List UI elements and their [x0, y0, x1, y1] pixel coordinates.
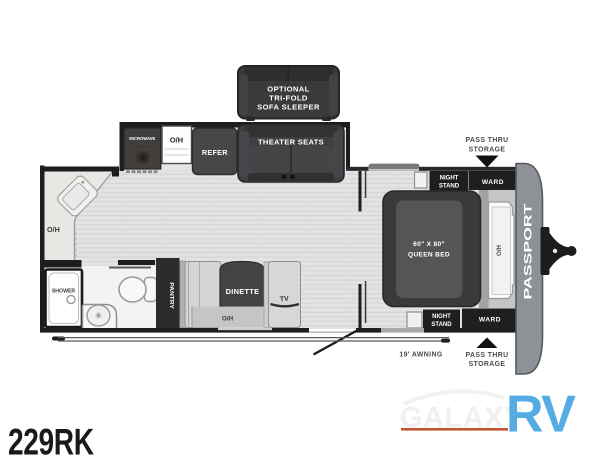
svg-text:O/H: O/H — [170, 136, 183, 145]
svg-text:THEATER SEATS: THEATER SEATS — [258, 138, 324, 147]
svg-text:NIGHT: NIGHT — [440, 176, 459, 182]
svg-text:QUEEN BED: QUEEN BED — [408, 252, 450, 259]
svg-text:SOFA SLEEPER: SOFA SLEEPER — [257, 103, 320, 112]
svg-text:PASS THRU: PASS THRU — [466, 137, 509, 144]
svg-text:TRI-FOLD: TRI-FOLD — [269, 94, 308, 103]
svg-text:PASS THRU: PASS THRU — [466, 352, 509, 359]
svg-text:O/H: O/H — [47, 225, 60, 234]
svg-text:DINETTE: DINETTE — [226, 287, 260, 296]
svg-text:WARD: WARD — [482, 179, 504, 186]
svg-text:RV: RV — [506, 386, 576, 444]
svg-text:229RK: 229RK — [8, 421, 94, 460]
svg-text:WARD: WARD — [479, 317, 501, 324]
svg-text:60" X 80": 60" X 80" — [413, 241, 445, 248]
svg-text:STORAGE: STORAGE — [469, 147, 506, 154]
svg-text:NIGHT: NIGHT — [432, 314, 451, 320]
svg-text:O/H: O/H — [222, 316, 234, 323]
svg-text:REFER: REFER — [202, 148, 228, 157]
svg-text:SHOWER: SHOWER — [52, 289, 76, 295]
svg-text:19' AWNING: 19' AWNING — [399, 352, 442, 359]
svg-text:TV: TV — [280, 296, 290, 304]
svg-text:PASSPORT: PASSPORT — [523, 203, 535, 300]
svg-text:STAND: STAND — [439, 184, 460, 190]
svg-text:STAND: STAND — [431, 322, 452, 328]
svg-text:STORAGE: STORAGE — [469, 361, 506, 368]
svg-text:MICROWAVE: MICROWAVE — [129, 136, 155, 141]
svg-text:PANTRY: PANTRY — [168, 282, 174, 309]
svg-text:OPTIONAL: OPTIONAL — [267, 85, 309, 94]
svg-text:O/H: O/H — [496, 244, 503, 256]
